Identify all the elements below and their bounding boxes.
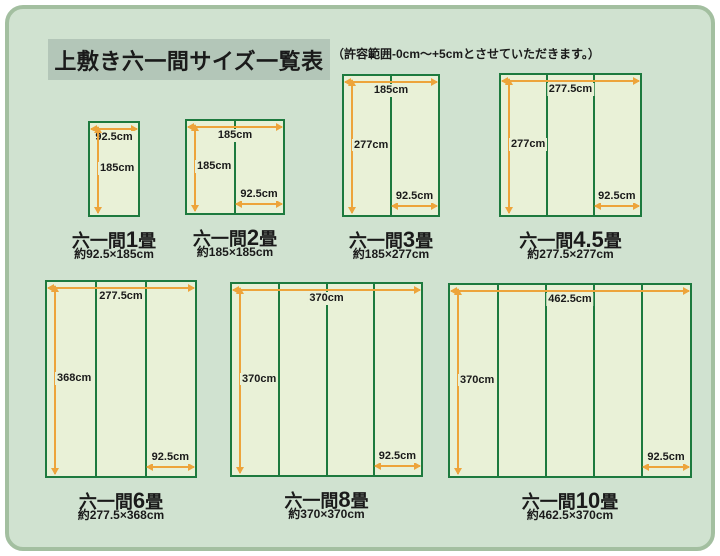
mat-divider: [278, 284, 280, 475]
width-arrow: [233, 289, 420, 291]
mat-divider: [326, 284, 328, 475]
width-label: 277.5cm: [97, 290, 144, 303]
width-label: 277.5cm: [547, 83, 594, 96]
column-width-label: 92.5cm: [394, 190, 435, 203]
mat-divider: [390, 76, 392, 215]
diagram-size-3jo: 約185×277cm: [353, 248, 429, 260]
column-width-label: 92.5cm: [150, 451, 191, 464]
diagram-size-4-5jo: 約277.5×277cm: [527, 248, 613, 260]
height-label: 277cm: [352, 139, 390, 152]
height-label: 370cm: [458, 374, 496, 387]
height-label: 370cm: [240, 373, 278, 386]
height-label: 277cm: [509, 138, 547, 151]
mat-divider: [593, 285, 595, 476]
page-title-box: 上敷き六一間サイズ一覧表: [48, 39, 330, 80]
column-width-arrow: [236, 203, 282, 205]
column-width-label: 92.5cm: [238, 188, 279, 201]
mat-divider: [95, 282, 97, 476]
tolerance-note: （許容範囲-0cm～+5cmとさせていただきます。）: [332, 45, 600, 62]
column-width-label: 92.5cm: [596, 190, 637, 203]
column-width-label: 92.5cm: [645, 451, 686, 464]
diagram-size-2jo: 約185×185cm: [197, 246, 273, 258]
width-arrow: [345, 81, 437, 83]
mat-divider: [373, 284, 375, 475]
column-width-label: 92.5cm: [377, 450, 418, 463]
width-label: 462.5cm: [546, 293, 593, 306]
diagram-size-1jo: 約92.5×185cm: [74, 248, 154, 260]
diagram-size-6jo: 約277.5×368cm: [78, 509, 164, 521]
height-label: 368cm: [55, 372, 93, 385]
column-width-arrow: [375, 465, 420, 467]
width-arrow: [502, 80, 639, 82]
width-arrow: [48, 287, 194, 289]
page: 上敷き六一間サイズ一覧表 （許容範囲-0cm～+5cmとさせていただきます。） …: [0, 0, 720, 556]
mat-divider: [497, 285, 499, 476]
diagram-size-8jo: 約370×370cm: [288, 508, 364, 520]
mat-divider: [593, 75, 595, 215]
page-title: 上敷き六一間サイズ一覧表: [54, 44, 323, 76]
height-label: 185cm: [195, 160, 233, 173]
width-label: 185cm: [216, 129, 254, 142]
mat-divider: [641, 285, 643, 476]
height-label: 185cm: [98, 162, 136, 175]
column-width-arrow: [147, 466, 194, 468]
column-width-arrow: [392, 205, 437, 207]
column-width-arrow: [643, 466, 689, 468]
column-width-arrow: [595, 205, 639, 207]
mat-divider: [545, 285, 547, 476]
width-label: 370cm: [307, 292, 345, 305]
diagram-size-10jo: 約462.5×370cm: [527, 509, 613, 521]
width-label: 185cm: [372, 84, 410, 97]
width-arrow: [188, 126, 282, 128]
mat-divider: [145, 282, 147, 476]
width-arrow: [451, 290, 689, 292]
